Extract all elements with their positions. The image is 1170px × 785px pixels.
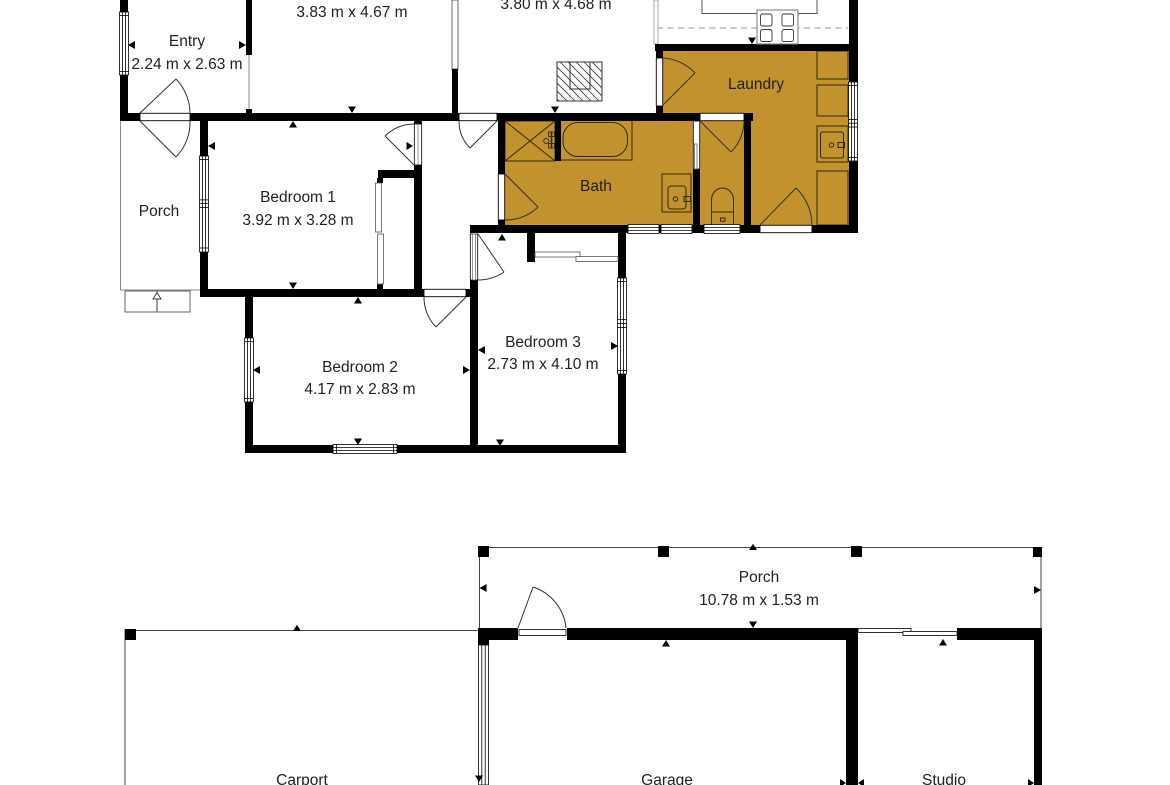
svg-text:2.24 m x 2.63 m: 2.24 m x 2.63 m [131, 56, 242, 73]
svg-text:3.80 m x 4.68 m: 3.80 m x 4.68 m [500, 0, 611, 13]
svg-text:Bedroom 2: Bedroom 2 [322, 359, 398, 376]
svg-text:Entry: Entry [169, 33, 205, 50]
svg-text:Bath: Bath [580, 178, 612, 195]
svg-text:Bedroom 3: Bedroom 3 [505, 334, 581, 351]
svg-text:4.17 m x 2.83 m: 4.17 m x 2.83 m [304, 381, 415, 398]
svg-text:Porch: Porch [139, 203, 180, 220]
svg-text:10.78 m x 1.53 m: 10.78 m x 1.53 m [699, 592, 819, 609]
svg-text:Bedroom 1: Bedroom 1 [260, 189, 336, 206]
svg-text:Carport: Carport [276, 772, 328, 785]
svg-text:3.92 m x 3.28 m: 3.92 m x 3.28 m [242, 212, 353, 229]
svg-text:Studio: Studio [922, 772, 966, 785]
svg-text:Porch: Porch [739, 569, 780, 586]
svg-text:Garage: Garage [641, 772, 693, 785]
svg-text:3.83 m x 4.67 m: 3.83 m x 4.67 m [296, 4, 407, 21]
svg-text:2.73 m x 4.10 m: 2.73 m x 4.10 m [487, 356, 598, 373]
svg-text:Laundry: Laundry [728, 76, 784, 93]
